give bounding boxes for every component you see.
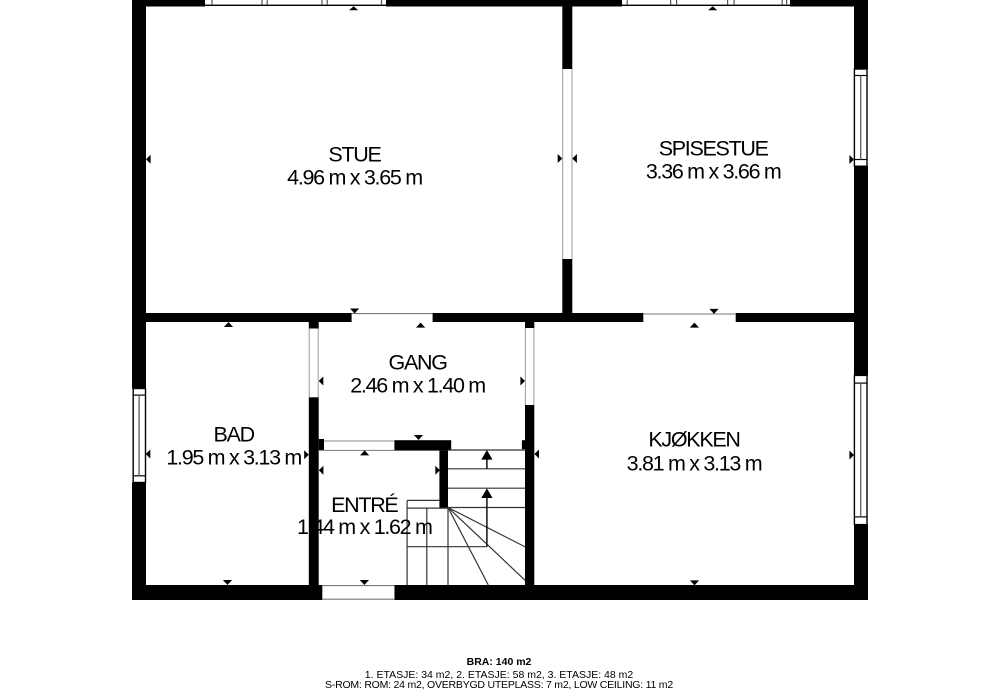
svg-text:STUE: STUE — [328, 143, 381, 167]
svg-text:4.96 m x 3.65 m: 4.96 m x 3.65 m — [287, 165, 422, 189]
svg-text:3.81 m x 3.13 m: 3.81 m x 3.13 m — [627, 451, 762, 475]
svg-text:BRA: 140 m2: BRA: 140 m2 — [467, 656, 532, 668]
svg-text:S-ROM: ROM: 24 m2, OVERBYGD UT: S-ROM: ROM: 24 m2, OVERBYGD UTEPLASS: 7 … — [325, 679, 673, 691]
svg-text:BAD: BAD — [214, 423, 255, 447]
svg-text:KJØKKEN: KJØKKEN — [648, 428, 739, 452]
svg-text:SPISESTUE: SPISESTUE — [659, 136, 769, 160]
svg-text:GANG: GANG — [389, 351, 448, 375]
svg-text:2.46 m x 1.40 m: 2.46 m x 1.40 m — [350, 374, 485, 398]
svg-text:1.44 m x 1.62 m: 1.44 m x 1.62 m — [297, 515, 432, 539]
svg-text:3.36 m x 3.66 m: 3.36 m x 3.66 m — [646, 160, 781, 184]
svg-text:ENTRÉ: ENTRÉ — [331, 492, 398, 517]
svg-text:1.95 m x 3.13 m: 1.95 m x 3.13 m — [166, 445, 301, 469]
